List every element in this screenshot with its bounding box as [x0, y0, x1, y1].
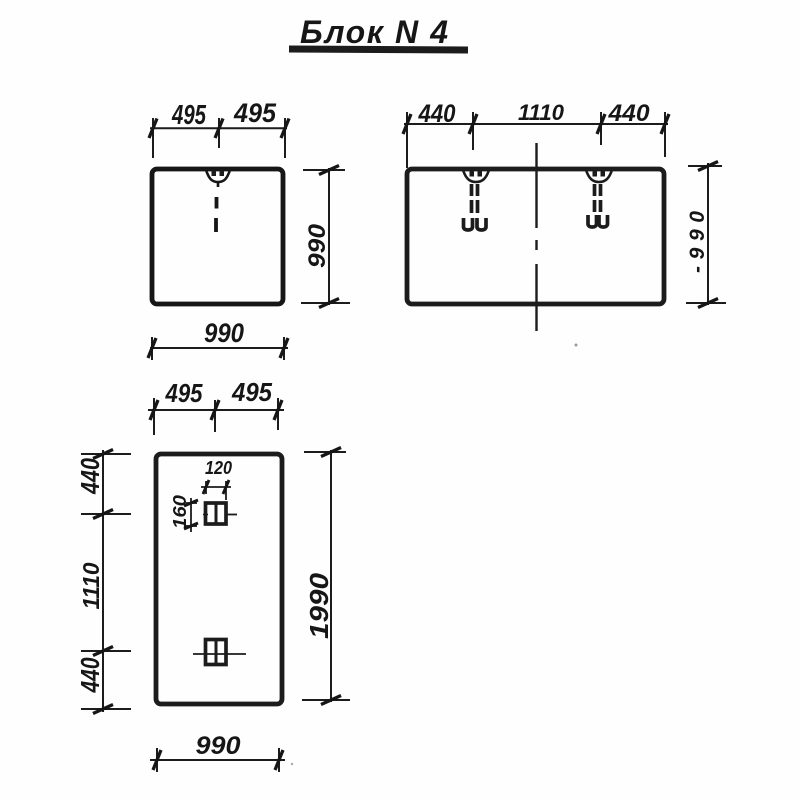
svg-text:Блок N 4: Блок N 4: [300, 14, 448, 50]
svg-text:440: 440: [75, 458, 105, 495]
svg-text:495: 495: [171, 99, 206, 130]
svg-text:990: 990: [204, 318, 244, 348]
svg-text:1110: 1110: [78, 562, 104, 609]
svg-text:495: 495: [165, 378, 203, 408]
svg-text:495: 495: [233, 98, 277, 128]
svg-text:990: 990: [196, 732, 241, 760]
svg-text:120: 120: [205, 458, 232, 478]
svg-text:990: 990: [304, 223, 331, 268]
svg-text:440: 440: [607, 100, 650, 127]
svg-text:-990: -990: [686, 211, 709, 273]
svg-text:495: 495: [231, 377, 272, 407]
svg-text:440: 440: [418, 100, 456, 128]
svg-text:1110: 1110: [518, 100, 565, 125]
svg-text:160: 160: [170, 495, 190, 529]
svg-text:440: 440: [75, 657, 105, 693]
svg-text:1990: 1990: [304, 572, 334, 639]
